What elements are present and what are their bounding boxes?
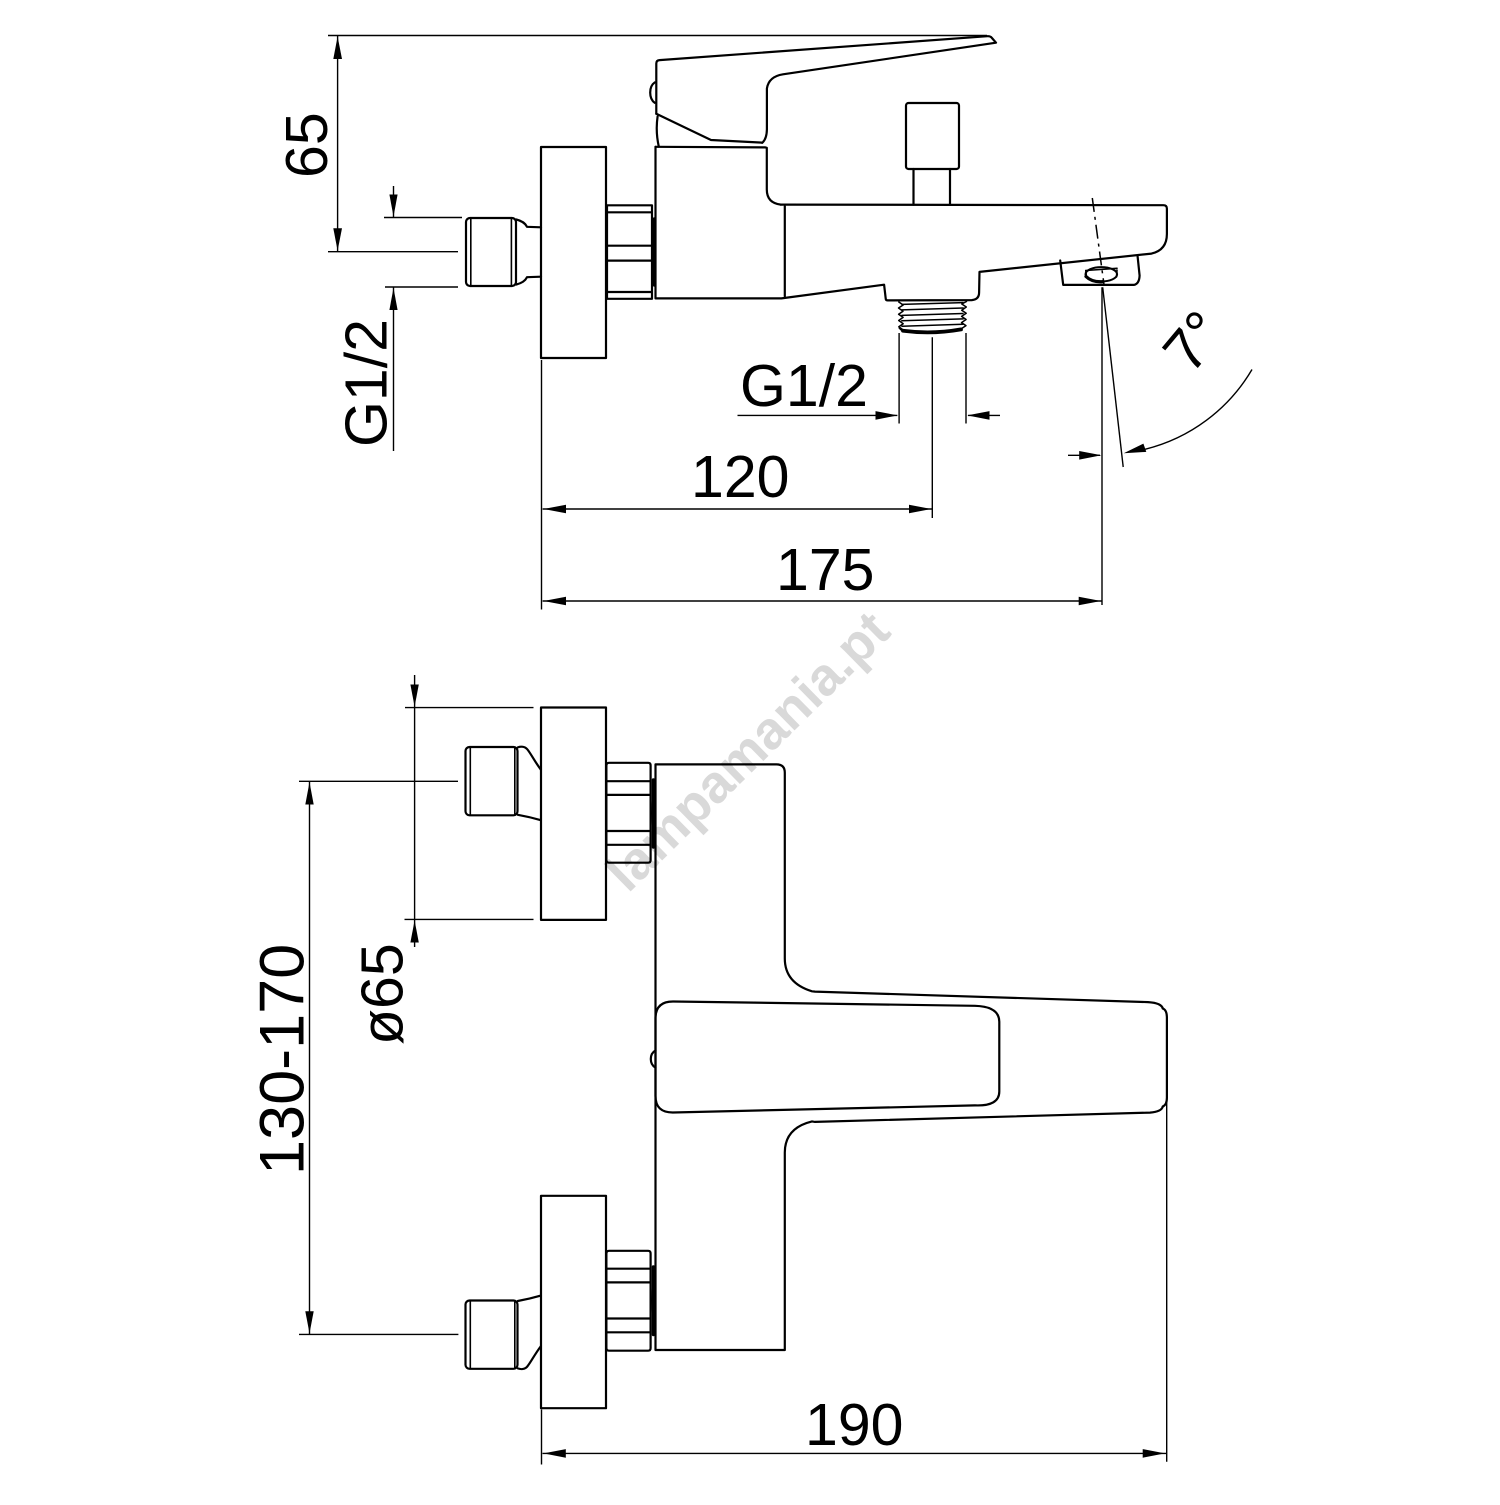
svg-text:175: 175	[776, 537, 874, 603]
svg-text:G1/2: G1/2	[740, 353, 868, 419]
svg-text:120: 120	[691, 444, 789, 510]
svg-text:65: 65	[274, 112, 340, 178]
svg-text:130-170: 130-170	[248, 944, 318, 1175]
svg-text:G1/2: G1/2	[333, 319, 399, 447]
svg-text:ø65: ø65	[350, 943, 416, 1045]
svg-text:190: 190	[805, 1392, 903, 1458]
